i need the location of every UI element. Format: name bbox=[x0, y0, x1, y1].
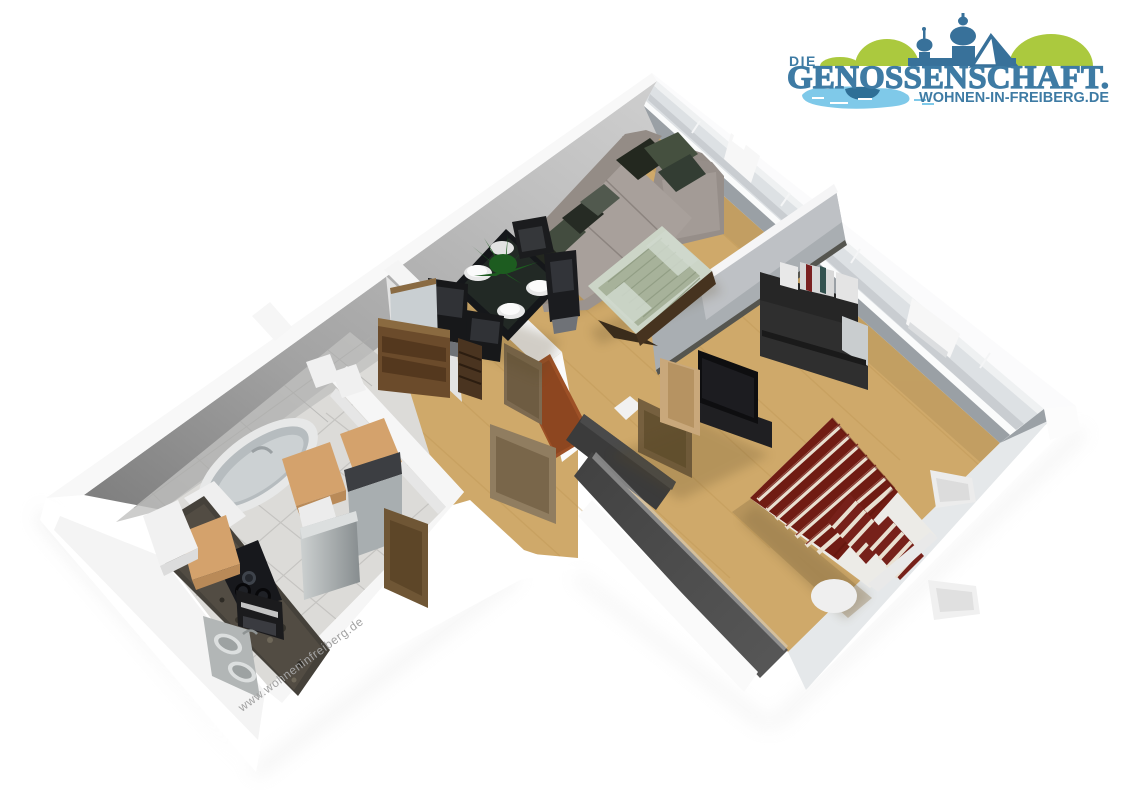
svg-text:WOHNEN-IN-FREIBERG.DE: WOHNEN-IN-FREIBERG.DE bbox=[919, 90, 1109, 106]
